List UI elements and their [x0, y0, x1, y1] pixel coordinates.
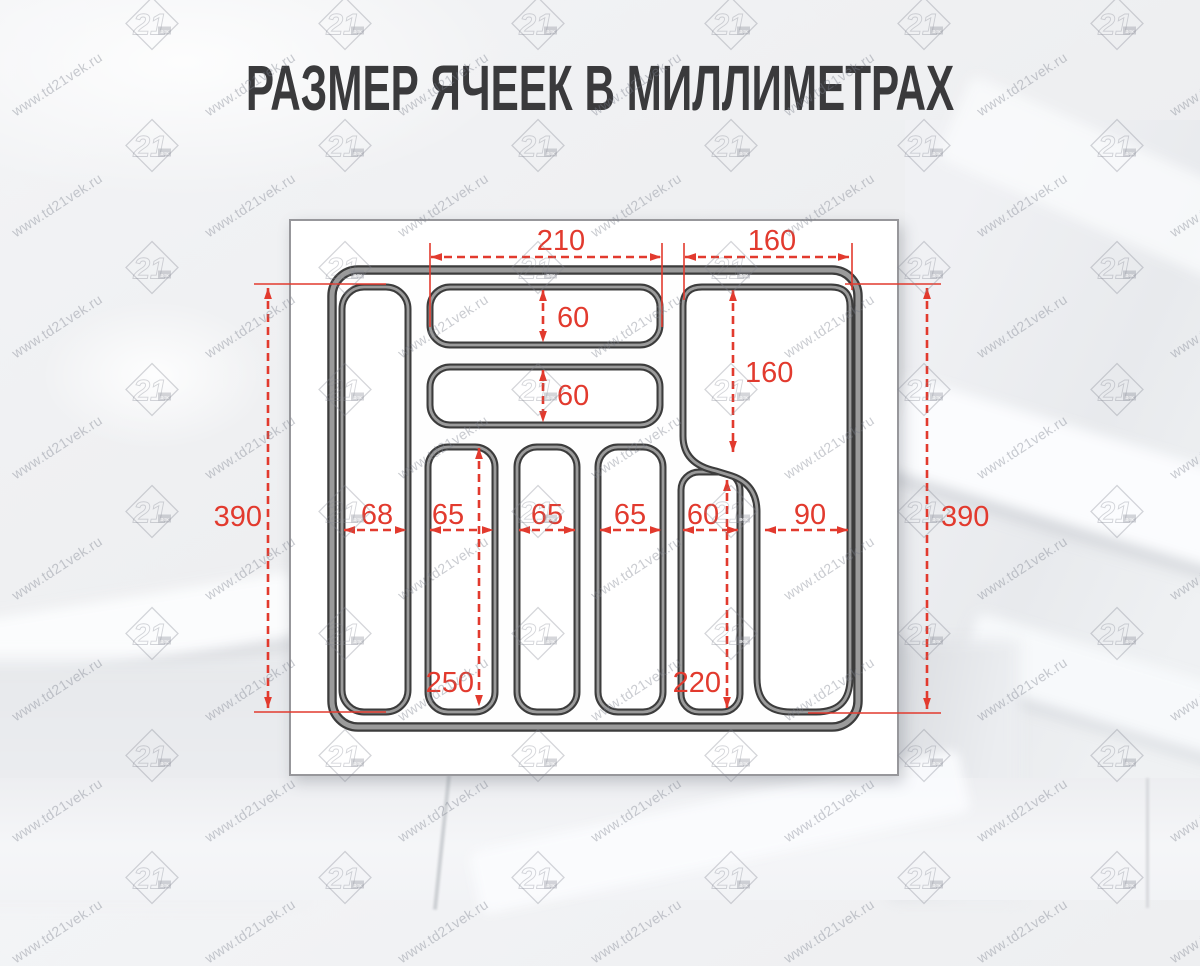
- watermark-url-text: www.td21vek.ru: [9, 533, 105, 603]
- svg-text:век: век: [160, 761, 169, 767]
- watermark-url-text: www.td21vek.ru: [9, 896, 105, 966]
- watermark-21vek-logo-icon: 21век: [125, 119, 179, 178]
- logo-diamond: [512, 852, 564, 904]
- watermark-url-text: www.td21vek.ru: [9, 170, 105, 240]
- watermark-url-text: www.td21vek.ru: [1167, 775, 1200, 845]
- watermark-url-text: www.td21vek.ru: [9, 291, 105, 361]
- svg-text:21: 21: [132, 741, 166, 774]
- logo-diamond: [126, 730, 178, 782]
- watermark-21vek-logo-icon: 21век: [1090, 363, 1144, 422]
- svg-text:21: 21: [1097, 619, 1131, 652]
- svg-text:21: 21: [904, 741, 938, 774]
- logo-diamond: [898, 364, 950, 416]
- logo-diamond: [126, 852, 178, 904]
- svg-text:век: век: [1125, 639, 1134, 645]
- page: { "title": "РАЗМЕР ЯЧЕЕК В МИЛЛИМЕТРАХ",…: [0, 0, 1200, 900]
- svg-text:век: век: [160, 395, 169, 401]
- watermark-url-text: www.td21vek.ru: [202, 896, 298, 966]
- watermark-21vek-logo-icon: 21век: [897, 241, 951, 300]
- watermark-url-text: www.td21vek.ru: [588, 775, 684, 845]
- watermark-url-text: www.td21vek.ru: [202, 291, 298, 361]
- watermark-url-text: www.td21vek.ru: [1167, 49, 1200, 119]
- svg-text:21: 21: [904, 863, 938, 896]
- watermark-21vek-logo-icon: 21век: [1090, 0, 1144, 56]
- svg-text:век: век: [160, 883, 169, 889]
- svg-text:век: век: [1125, 883, 1134, 889]
- watermark-url-text: www.td21vek.ru: [974, 170, 1070, 240]
- watermark-21vek-logo-icon: 21век: [897, 363, 951, 422]
- watermark-21vek-logo-icon: 21век: [897, 485, 951, 544]
- svg-text:21: 21: [904, 253, 938, 286]
- watermark-21vek-logo-icon: 21век: [897, 851, 951, 910]
- watermark-21vek-logo-icon: 21век: [704, 0, 758, 56]
- logo-diamond: [1091, 120, 1143, 172]
- bg-photo-left-highlight: [40, 300, 270, 450]
- watermark-21vek-logo-icon: 21век: [1090, 729, 1144, 788]
- logo-diamond: [898, 730, 950, 782]
- watermark-url-text: www.td21vek.ru: [202, 654, 298, 724]
- watermark-21vek-logo-icon: 21век: [125, 607, 179, 666]
- svg-text:век: век: [353, 151, 362, 157]
- svg-text:21: 21: [518, 9, 552, 42]
- watermark-21vek-logo-icon: 21век: [318, 119, 372, 178]
- watermark-21vek-logo-icon: 21век: [1090, 851, 1144, 910]
- svg-text:век: век: [1125, 151, 1134, 157]
- watermark-21vek-logo-icon: 21век: [125, 851, 179, 910]
- watermark-21vek-logo-icon: 21век: [897, 607, 951, 666]
- logo-diamond: [1091, 364, 1143, 416]
- svg-text:век: век: [353, 29, 362, 35]
- bg-photo-drawer-seam-right: [1146, 778, 1149, 908]
- svg-text:21: 21: [904, 131, 938, 164]
- logo-diamond: [512, 120, 564, 172]
- svg-text:век: век: [932, 639, 941, 645]
- watermark-url-text: www.td21vek.ru: [974, 654, 1070, 724]
- svg-text:век: век: [546, 883, 555, 889]
- svg-text:21: 21: [1097, 741, 1131, 774]
- svg-text:век: век: [739, 29, 748, 35]
- logo-diamond: [898, 608, 950, 660]
- logo-diamond: [1091, 608, 1143, 660]
- svg-text:21: 21: [132, 863, 166, 896]
- svg-text:21: 21: [904, 619, 938, 652]
- svg-text:21: 21: [711, 863, 745, 896]
- svg-text:век: век: [1125, 517, 1134, 523]
- logo-diamond: [126, 486, 178, 538]
- watermark-url-text: www.td21vek.ru: [9, 654, 105, 724]
- svg-text:век: век: [739, 883, 748, 889]
- svg-text:век: век: [1125, 395, 1134, 401]
- label-390-left: 390: [214, 501, 262, 533]
- svg-text:век: век: [160, 29, 169, 35]
- watermark-21vek-logo-icon: 21век: [1090, 119, 1144, 178]
- svg-text:21: 21: [1097, 9, 1131, 42]
- svg-text:век: век: [353, 883, 362, 889]
- watermark-21vek-logo-icon: 21век: [897, 119, 951, 178]
- watermark-21vek-logo-icon: 21век: [1090, 241, 1144, 300]
- watermark-21vek-logo-icon: 21век: [511, 0, 565, 56]
- watermark-21vek-logo-icon: 21век: [1090, 607, 1144, 666]
- bg-photo-counter-edge: [876, 375, 1200, 601]
- watermark-url-text: www.td21vek.ru: [202, 775, 298, 845]
- svg-text:век: век: [932, 517, 941, 523]
- logo-diamond: [1091, 0, 1143, 50]
- svg-text:21: 21: [325, 9, 359, 42]
- svg-text:век: век: [739, 151, 748, 157]
- watermark-url-text: www.td21vek.ru: [1167, 291, 1200, 361]
- svg-text:век: век: [932, 273, 941, 279]
- svg-text:век: век: [932, 883, 941, 889]
- watermark-21vek-logo-icon: 21век: [1090, 485, 1144, 544]
- svg-text:21: 21: [1097, 253, 1131, 286]
- watermark-url-text: www.td21vek.ru: [395, 896, 491, 966]
- watermark-url-text: www.td21vek.ru: [202, 170, 298, 240]
- watermark-url-text: www.td21vek.ru: [781, 775, 877, 845]
- logo-diamond: [1091, 242, 1143, 294]
- svg-text:21: 21: [325, 131, 359, 164]
- svg-text:21: 21: [518, 131, 552, 164]
- diagram-box: [289, 219, 899, 776]
- logo-diamond: [319, 120, 371, 172]
- svg-text:век: век: [1125, 273, 1134, 279]
- svg-text:век: век: [932, 761, 941, 767]
- svg-text:21: 21: [132, 619, 166, 652]
- svg-text:21: 21: [518, 863, 552, 896]
- watermark-url-text: www.td21vek.ru: [1167, 896, 1200, 966]
- logo-diamond: [898, 486, 950, 538]
- logo-diamond: [1091, 486, 1143, 538]
- svg-text:21: 21: [132, 9, 166, 42]
- bg-photo-right-panel: [905, 120, 1200, 790]
- watermark-21vek-logo-icon: 21век: [125, 485, 179, 544]
- svg-text:век: век: [1125, 761, 1134, 767]
- logo-diamond: [319, 0, 371, 50]
- watermark-url-text: www.td21vek.ru: [974, 533, 1070, 603]
- svg-text:21: 21: [711, 131, 745, 164]
- svg-text:век: век: [932, 395, 941, 401]
- logo-diamond: [319, 852, 371, 904]
- bg-photo-counter-edge2: [957, 612, 1200, 778]
- watermark-url-text: www.td21vek.ru: [1167, 412, 1200, 482]
- svg-text:21: 21: [1097, 497, 1131, 530]
- logo-diamond: [126, 364, 178, 416]
- svg-text:21: 21: [325, 863, 359, 896]
- bg-photo-left-shadow: [0, 660, 300, 900]
- watermark-url-text: www.td21vek.ru: [781, 896, 877, 966]
- svg-text:век: век: [160, 151, 169, 157]
- svg-text:век: век: [546, 151, 555, 157]
- svg-text:21: 21: [132, 375, 166, 408]
- watermark-url-text: www.td21vek.ru: [974, 291, 1070, 361]
- bg-photo-right-shadow: [890, 640, 1020, 900]
- logo-diamond: [705, 852, 757, 904]
- svg-text:21: 21: [1097, 375, 1131, 408]
- watermark-url-text: www.td21vek.ru: [9, 775, 105, 845]
- watermark-url-text: www.td21vek.ru: [1167, 533, 1200, 603]
- logo-diamond: [705, 120, 757, 172]
- svg-text:21: 21: [1097, 131, 1131, 164]
- logo-diamond: [898, 852, 950, 904]
- watermark-21vek-logo-icon: 21век: [897, 729, 951, 788]
- svg-text:21: 21: [132, 497, 166, 530]
- watermark-21vek-logo-icon: 21век: [897, 0, 951, 56]
- svg-text:21: 21: [904, 9, 938, 42]
- svg-text:21: 21: [132, 253, 166, 286]
- watermark-21vek-logo-icon: 21век: [704, 119, 758, 178]
- logo-diamond: [1091, 852, 1143, 904]
- watermark-url-text: www.td21vek.ru: [395, 775, 491, 845]
- watermark-21vek-logo-icon: 21век: [125, 363, 179, 422]
- svg-text:21: 21: [132, 131, 166, 164]
- watermark-21vek-logo-icon: 21век: [704, 851, 758, 910]
- watermark-21vek-logo-icon: 21век: [318, 851, 372, 910]
- watermark-21vek-logo-icon: 21век: [125, 241, 179, 300]
- bg-photo-drawer-fronts: [0, 778, 1200, 900]
- watermark-url-text: www.td21vek.ru: [9, 412, 105, 482]
- logo-diamond: [705, 0, 757, 50]
- watermark-21vek-logo-icon: 21век: [125, 0, 179, 56]
- svg-text:21: 21: [904, 497, 938, 530]
- svg-text:21: 21: [904, 375, 938, 408]
- watermark-url-text: www.td21vek.ru: [974, 896, 1070, 966]
- label-390-right: 390: [941, 501, 989, 533]
- svg-text:век: век: [160, 273, 169, 279]
- watermark-url-text: www.td21vek.ru: [9, 49, 105, 119]
- watermark-url-text: www.td21vek.ru: [974, 775, 1070, 845]
- svg-text:век: век: [932, 29, 941, 35]
- watermark-url-text: www.td21vek.ru: [974, 412, 1070, 482]
- logo-diamond: [898, 120, 950, 172]
- logo-diamond: [512, 0, 564, 50]
- watermark-21vek-logo-icon: 21век: [125, 729, 179, 788]
- watermark-url-text: www.td21vek.ru: [202, 412, 298, 482]
- watermark-21vek-logo-icon: 21век: [511, 119, 565, 178]
- watermark-21vek-logo-icon: 21век: [511, 851, 565, 910]
- svg-text:21: 21: [1097, 863, 1131, 896]
- logo-diamond: [898, 0, 950, 50]
- logo-diamond: [898, 242, 950, 294]
- bg-photo-left-counter: [0, 571, 303, 688]
- watermark-url-text: www.td21vek.ru: [202, 533, 298, 603]
- svg-text:век: век: [160, 517, 169, 523]
- logo-diamond: [126, 120, 178, 172]
- watermark-url-text: www.td21vek.ru: [588, 896, 684, 966]
- svg-text:век: век: [546, 29, 555, 35]
- logo-diamond: [126, 608, 178, 660]
- bg-photo-drawer-seam: [433, 775, 451, 910]
- logo-diamond: [126, 0, 178, 50]
- svg-text:век: век: [160, 639, 169, 645]
- page-title: РАЗМЕР ЯЧЕЕК В МИЛЛИМЕТРАХ: [204, 56, 996, 120]
- watermark-url-text: www.td21vek.ru: [1167, 170, 1200, 240]
- watermark-url-text: www.td21vek.ru: [1167, 654, 1200, 724]
- logo-diamond: [126, 242, 178, 294]
- svg-text:век: век: [932, 151, 941, 157]
- watermark-21vek-logo-icon: 21век: [318, 0, 372, 56]
- svg-text:21: 21: [711, 9, 745, 42]
- logo-diamond: [1091, 730, 1143, 782]
- svg-text:век: век: [1125, 29, 1134, 35]
